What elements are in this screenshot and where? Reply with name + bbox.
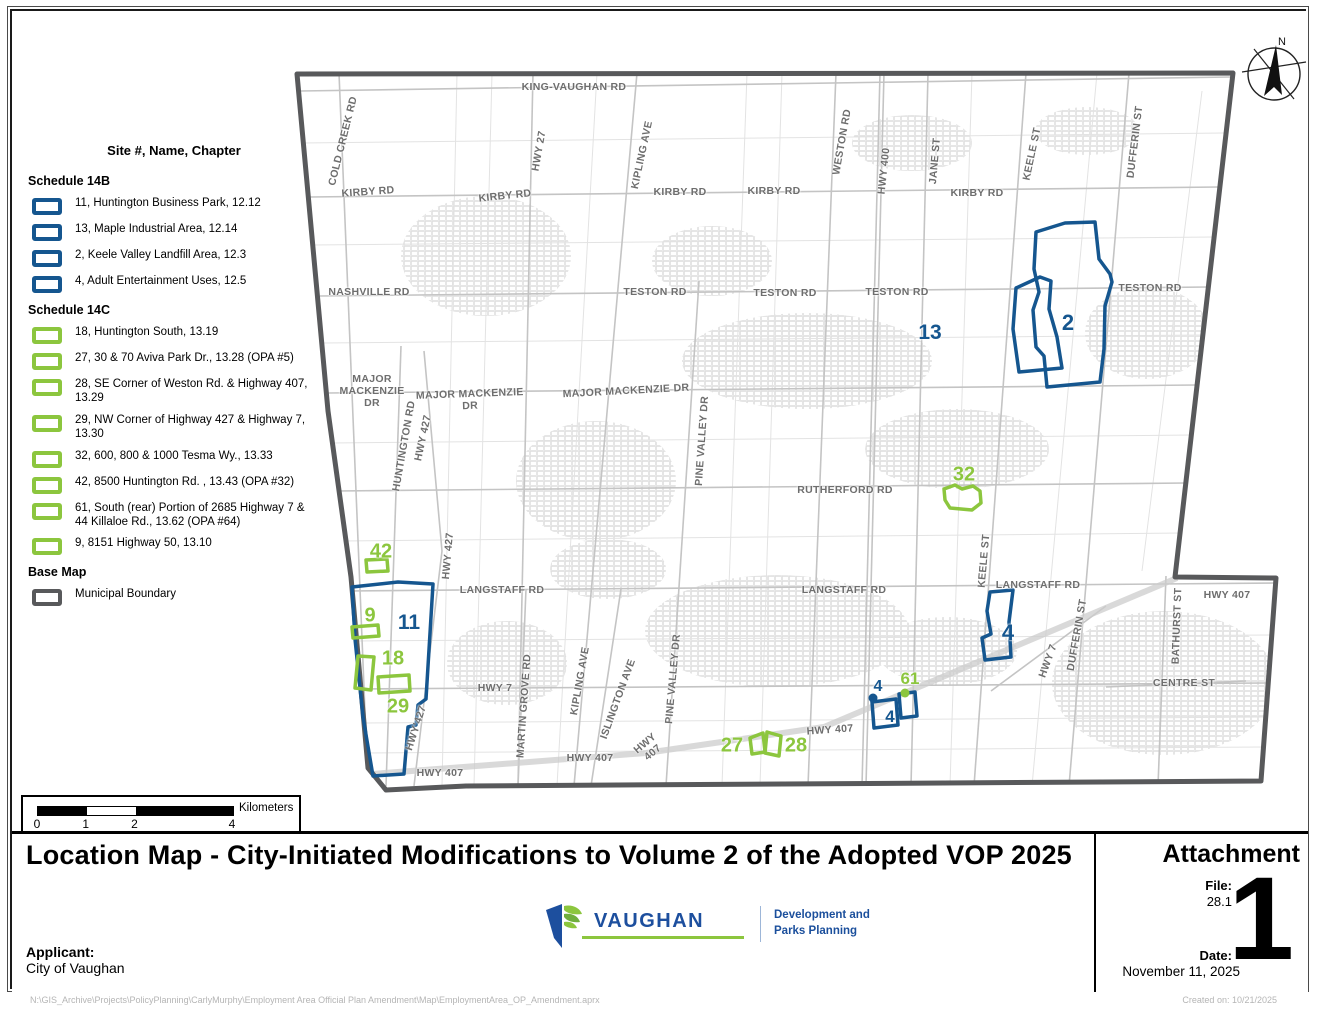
road-label: HWY 407 [567, 752, 614, 764]
legend-section-header: Schedule 14C [28, 303, 320, 317]
legend-item: 11, Huntington Business Park, 12.12 [28, 196, 320, 215]
legend-item-label: 32, 600, 800 & 1000 Tesma Wy., 13.33 [75, 449, 311, 463]
site-number-label: 9 [364, 605, 375, 628]
road-label: TESTON RD [753, 287, 816, 299]
site-number-label: 27 [721, 735, 743, 758]
page-outer-border: N KING-VAUGHAN RDKIRBY RDKIRBY RDKIRBY R… [7, 6, 1309, 992]
road-label: TESTON RD [623, 286, 686, 298]
legend-item: 13, Maple Industrial Area, 12.14 [28, 222, 320, 241]
road-label: CENTRE ST [1153, 677, 1215, 689]
legend-item-label: 29, NW Corner of Highway 427 & Highway 7… [75, 413, 311, 442]
scale-tick: 0 [34, 817, 41, 831]
scale-bar [37, 806, 234, 816]
legend-item: 9, 8151 Highway 50, 13.10 [28, 536, 320, 555]
road-label: HWY 407 [1204, 589, 1251, 601]
legend-item-label: 2, Keele Valley Landfill Area, 12.3 [75, 248, 311, 262]
site-number-label: 11 [398, 611, 420, 635]
applicant-block: Applicant: City of Vaughan [26, 944, 125, 976]
scale-tick: 1 [82, 817, 89, 831]
site-number-label: 4 [885, 707, 894, 727]
legend-item: 61, South (rear) Portion of 2685 Highway… [28, 501, 320, 530]
applicant-value: City of Vaughan [26, 960, 125, 976]
attachment-number: 1 [1228, 860, 1294, 978]
road-label: MAJOR MACKENZIE DR [339, 373, 404, 409]
legend-swatch-green [32, 503, 62, 520]
legend-swatch-green [32, 353, 62, 370]
legend-item-label: 18, Huntington South, 13.19 [75, 325, 311, 339]
road-label: HWY 407 [417, 767, 464, 779]
site-number-label: 13 [918, 321, 941, 345]
legend-item: 29, NW Corner of Highway 427 & Highway 7… [28, 413, 320, 442]
footer-file-path: N:\GIS_Archive\Projects\PolicyPlanning\C… [30, 995, 600, 1005]
legend-item-label: 27, 30 & 70 Aviva Park Dr., 13.28 (OPA #… [75, 351, 311, 365]
legend-item: 42, 8500 Huntington Rd. , 13.43 (OPA #32… [28, 475, 320, 494]
legend-swatch-green [32, 415, 62, 432]
scale-unit-label: Kilometers [239, 802, 293, 814]
site-number-label: 18 [382, 648, 404, 671]
road-label: KIRBY RD [951, 187, 1004, 199]
map-title: Location Map - City-Initiated Modificati… [26, 840, 1086, 871]
legend-swatch-blue [32, 224, 62, 241]
road-label: KIRBY RD [654, 186, 707, 198]
map-legend: Site #, Name, Chapter Schedule 14B11, Hu… [28, 143, 320, 613]
legend-swatch-green [32, 538, 62, 555]
legend-swatch-gray [32, 589, 62, 606]
legend-item-label: 42, 8500 Huntington Rd. , 13.43 (OPA #32… [75, 475, 311, 489]
site-number-label: 2 [1062, 310, 1074, 336]
applicant-label: Applicant: [26, 944, 125, 960]
legend-sections: Schedule 14B11, Huntington Business Park… [28, 174, 320, 606]
road-label: HWY 7 [478, 682, 513, 694]
logo-department-text: Development and Parks Planning [774, 908, 870, 939]
legend-item-label: 11, Huntington Business Park, 12.12 [75, 196, 311, 210]
legend-item-label: 28, SE Corner of Weston Rd. & Highway 40… [75, 377, 311, 406]
road-label: LANGSTAFF RD [802, 584, 886, 596]
legend-swatch-green [32, 477, 62, 494]
road-label: LANGSTAFF RD [996, 579, 1080, 591]
legend-item-label: 9, 8151 Highway 50, 13.10 [75, 536, 311, 550]
date-label: Date: [1199, 948, 1232, 963]
road-label: KING-VAUGHAN RD [522, 81, 627, 93]
road-label: TESTON RD [1118, 282, 1181, 294]
legend-section-header: Schedule 14B [28, 174, 320, 188]
scale-tick-labels: 0124 [37, 817, 232, 831]
legend-item: 4, Adult Entertainment Uses, 12.5 [28, 274, 320, 293]
vaughan-logo-icon [542, 902, 592, 954]
legend-item: 28, SE Corner of Weston Rd. & Highway 40… [28, 377, 320, 406]
legend-item: 27, 30 & 70 Aviva Park Dr., 13.28 (OPA #… [28, 351, 320, 370]
legend-title: Site #, Name, Chapter [28, 143, 320, 158]
svg-text:N: N [1278, 36, 1286, 48]
attachment-cell: Attachment File: 28.1 1 Date: November 1… [1094, 834, 1310, 992]
legend-section-header: Base Map [28, 565, 320, 579]
legend-item: 32, 600, 800 & 1000 Tesma Wy., 13.33 [28, 449, 320, 468]
legend-item-label: 13, Maple Industrial Area, 12.14 [75, 222, 311, 236]
legend-swatch-green [32, 327, 62, 344]
scale-tick: 4 [229, 817, 236, 831]
legend-item: 2, Keele Valley Landfill Area, 12.3 [28, 248, 320, 267]
legend-swatch-blue [32, 198, 62, 215]
legend-swatch-blue [32, 276, 62, 293]
site-number-label: 29 [387, 696, 409, 719]
logo-divider [760, 906, 761, 942]
date-value: November 11, 2025 [1122, 964, 1240, 979]
legend-item-label: Municipal Boundary [75, 587, 311, 601]
site-number-label: 61 [901, 669, 920, 689]
north-arrow-icon: N [1242, 36, 1306, 100]
site-number-label: 4 [1002, 620, 1014, 646]
legend-swatch-green [32, 451, 62, 468]
title-block: Location Map - City-Initiated Modificati… [12, 831, 1308, 992]
site-number-label: 4 [874, 678, 883, 696]
road-label: NASHVILLE RD [328, 286, 409, 298]
page-inner-border: N KING-VAUGHAN RDKIRBY RDKIRBY RDKIRBY R… [10, 9, 1306, 989]
site-61-point [901, 689, 910, 698]
road-label: KIRBY RD [748, 185, 801, 197]
legend-item: 18, Huntington South, 13.19 [28, 325, 320, 344]
road-label: LANGSTAFF RD [460, 584, 544, 596]
site-number-label: 32 [953, 464, 975, 487]
site-number-label: 42 [370, 541, 392, 564]
vaughan-logo-text: VAUGHAN [594, 910, 704, 933]
scale-tick: 2 [131, 817, 138, 831]
vaughan-logo-underline [582, 936, 744, 939]
road-label: MAJOR MACKENZIE DR [416, 386, 525, 414]
footer-created-date: Created on: 10/21/2025 [1182, 995, 1277, 1005]
legend-item-label: 4, Adult Entertainment Uses, 12.5 [75, 274, 311, 288]
map-area: N KING-VAUGHAN RDKIRBY RDKIRBY RDKIRBY R… [12, 11, 1308, 831]
road-label: TESTON RD [865, 286, 928, 298]
vaughan-logo: VAUGHAN Development and Parks Planning [542, 902, 872, 958]
legend-swatch-blue [32, 250, 62, 267]
legend-swatch-green [32, 379, 62, 396]
legend-item: Municipal Boundary [28, 587, 320, 606]
attachment-page: { "colors": { "site_blue": "#15568f", "s… [0, 0, 1317, 1012]
site-number-label: 28 [785, 735, 807, 758]
road-label: RUTHERFORD RD [797, 484, 892, 496]
legend-item-label: 61, South (rear) Portion of 2685 Highway… [75, 501, 311, 530]
